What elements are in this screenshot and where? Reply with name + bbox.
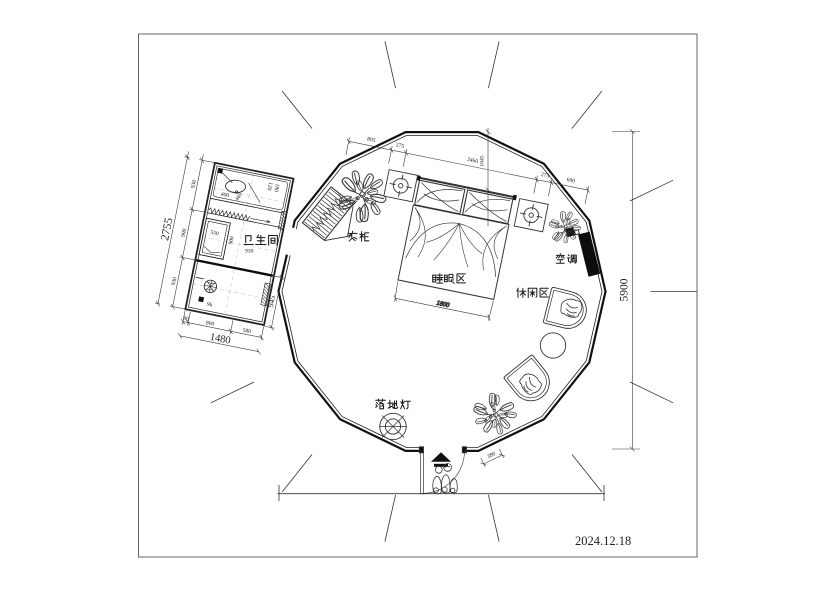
svg-text:930: 930 (245, 249, 254, 255)
svg-text:2024.12.18: 2024.12.18 (575, 534, 631, 548)
svg-text:2755: 2755 (159, 217, 175, 242)
svg-text:2460: 2460 (466, 157, 478, 165)
svg-text:805: 805 (366, 136, 376, 144)
svg-text:275: 275 (540, 172, 550, 180)
svg-text:1800: 1800 (436, 300, 451, 310)
svg-text:690: 690 (566, 177, 576, 185)
svg-text:380: 380 (486, 451, 496, 460)
svg-text:1480: 1480 (209, 332, 232, 347)
svg-text:1045: 1045 (480, 155, 486, 166)
svg-text:5900: 5900 (619, 278, 631, 301)
svg-text:275: 275 (395, 142, 405, 150)
